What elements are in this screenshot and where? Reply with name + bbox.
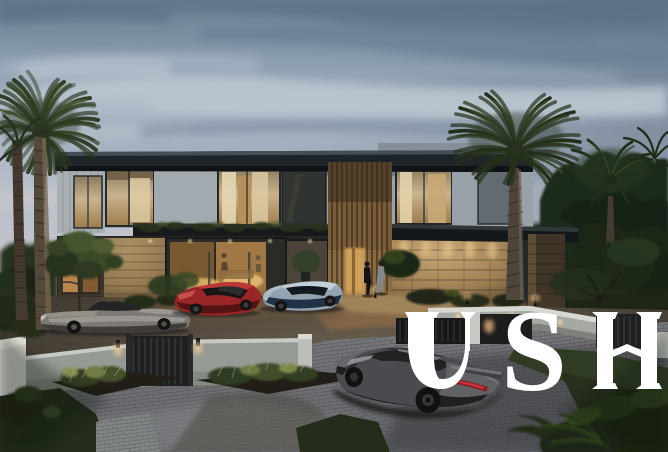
svg-text:S: S bbox=[501, 287, 567, 416]
